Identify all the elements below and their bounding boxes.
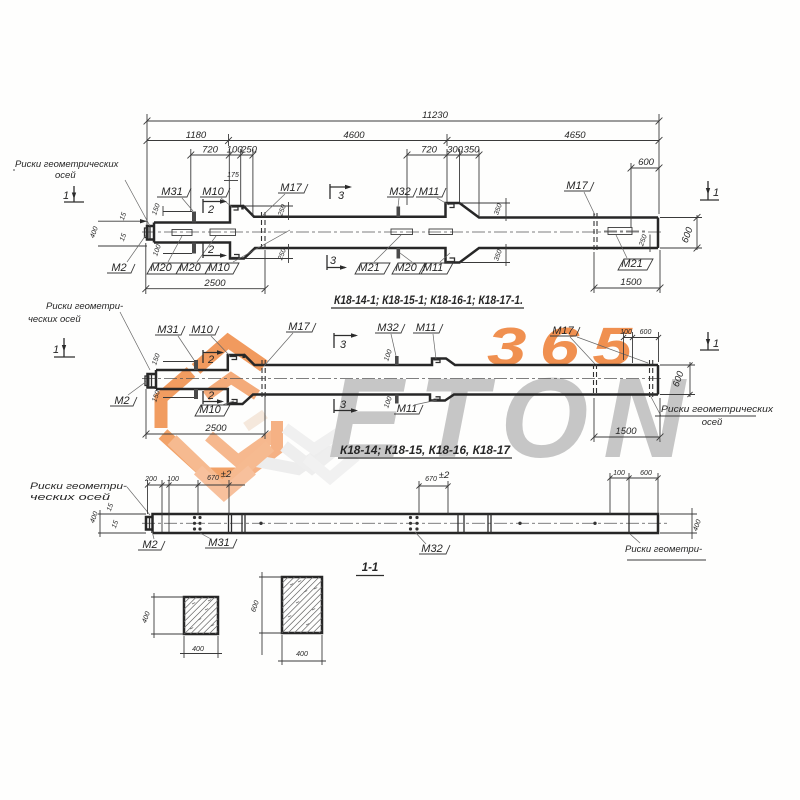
svg-text:М10: М10: [191, 324, 213, 336]
svg-text:600: 600: [640, 470, 652, 477]
svg-text:100: 100: [167, 476, 179, 483]
svg-text:М32: М32: [421, 543, 442, 555]
svg-text:720: 720: [202, 145, 219, 156]
svg-text:4600: 4600: [343, 130, 365, 141]
svg-text:М11: М11: [423, 262, 444, 274]
svg-text:М17: М17: [280, 182, 302, 194]
svg-text:1180: 1180: [186, 130, 207, 141]
svg-text:3: 3: [338, 190, 345, 202]
svg-text:Риски геометри-: Риски геометри-: [46, 301, 123, 312]
svg-text:М31: М31: [208, 537, 229, 549]
svg-text:175: 175: [227, 172, 239, 179]
svg-text:М2: М2: [114, 395, 129, 407]
svg-text:М31: М31: [161, 186, 182, 198]
svg-text:Риски геометри-: Риски геометри-: [30, 481, 127, 492]
svg-text:670: 670: [425, 476, 437, 483]
svg-text:3: 3: [340, 339, 347, 351]
svg-text:М32: М32: [389, 186, 410, 198]
svg-text:1-1: 1-1: [362, 562, 379, 574]
svg-text:Риски геометрических: Риски геометрических: [15, 159, 120, 170]
svg-text:ческих осей: ческих осей: [28, 314, 81, 325]
svg-text:±2: ±2: [439, 470, 450, 481]
svg-text:100: 100: [613, 470, 625, 477]
svg-text:М17: М17: [288, 321, 310, 333]
svg-text:1: 1: [713, 338, 719, 350]
svg-text:ческих осей: ческих осей: [30, 492, 111, 503]
svg-text:1500: 1500: [620, 277, 642, 288]
svg-text:осей: осей: [55, 170, 76, 181]
svg-text:400: 400: [192, 646, 204, 653]
svg-text:1: 1: [63, 190, 69, 202]
svg-text:М20: М20: [150, 262, 172, 274]
svg-text:670: 670: [207, 475, 219, 482]
svg-text:4650: 4650: [564, 130, 586, 141]
svg-text:300: 300: [447, 145, 464, 156]
svg-text:М10: М10: [208, 262, 230, 274]
svg-text:350: 350: [464, 145, 481, 156]
svg-text:М32: М32: [377, 322, 398, 334]
svg-text:1: 1: [713, 187, 719, 199]
svg-text:3: 3: [330, 255, 337, 267]
svg-text:200: 200: [144, 476, 157, 483]
svg-text:100: 100: [620, 329, 632, 336]
svg-text:М21: М21: [621, 258, 642, 270]
svg-text:М11: М11: [416, 322, 437, 334]
svg-text:М11: М11: [419, 186, 440, 198]
svg-text:М20: М20: [179, 262, 201, 274]
svg-text:М17: М17: [566, 180, 588, 192]
svg-text:600: 600: [638, 157, 655, 168]
svg-text:М20: М20: [395, 262, 417, 274]
svg-text:М2: М2: [111, 262, 126, 274]
svg-text:М10: М10: [199, 404, 221, 416]
svg-text:К18-14; К18-15, К18-16, К18-17: К18-14; К18-15, К18-16, К18-17: [340, 445, 511, 457]
svg-text:М2: М2: [142, 539, 157, 551]
svg-text:400: 400: [296, 651, 308, 658]
svg-text:Риски геометри-: Риски геометри-: [625, 544, 702, 555]
svg-text:2500: 2500: [204, 423, 227, 434]
svg-text:2500: 2500: [203, 278, 226, 289]
svg-text:Риски геометрических: Риски геометрических: [661, 404, 774, 415]
svg-text:М17: М17: [552, 325, 574, 337]
svg-text:М21: М21: [358, 262, 379, 274]
svg-text:720: 720: [421, 145, 438, 156]
svg-text:1: 1: [53, 344, 59, 356]
svg-text:1500: 1500: [615, 426, 637, 437]
svg-text:11230: 11230: [422, 110, 448, 121]
svg-text:±2: ±2: [221, 469, 232, 480]
svg-text:осей: осей: [702, 417, 723, 428]
svg-text:2: 2: [207, 244, 214, 256]
svg-text:2: 2: [207, 204, 214, 216]
svg-text:3: 3: [340, 399, 347, 411]
svg-text:К18-14-1; К18-15-1; К18-16-1;: К18-14-1; К18-15-1; К18-16-1; К18-17-1.: [334, 295, 523, 307]
svg-text:600: 600: [640, 329, 652, 336]
svg-text:2: 2: [207, 390, 214, 402]
svg-text:2: 2: [207, 354, 214, 366]
svg-text:М10: М10: [202, 186, 224, 198]
svg-text:М31: М31: [157, 324, 178, 336]
svg-text:250: 250: [240, 145, 258, 156]
